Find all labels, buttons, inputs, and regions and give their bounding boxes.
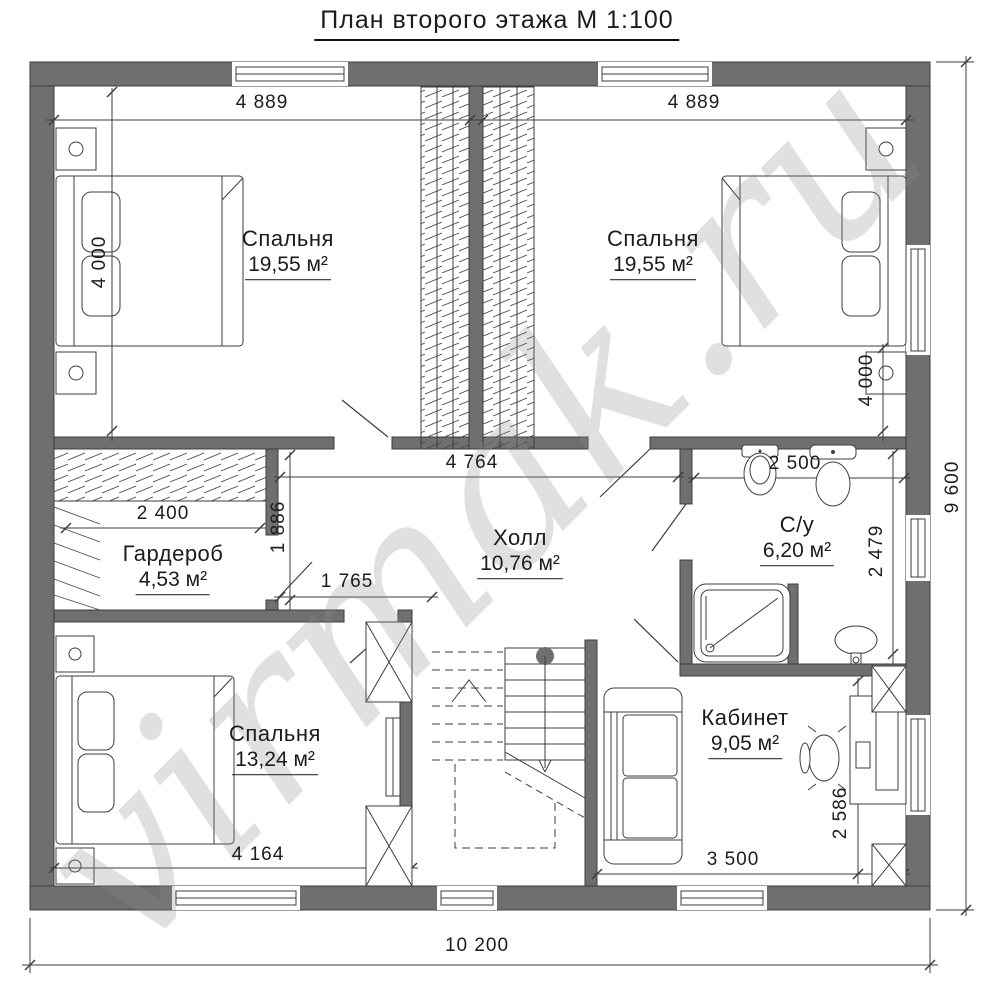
dim-label-wardrobe-depth: 1 886	[268, 501, 290, 554]
room-label-wardrobe: Гардероб 4,53 м²	[123, 541, 224, 595]
dim-label-total-width: 10 200	[445, 935, 509, 957]
dim-label-bedroom1-depth: 4 000	[89, 236, 111, 289]
staircase	[432, 647, 585, 848]
room-label-office: Кабинет 9,05 м²	[701, 705, 788, 759]
room-name: Холл	[477, 525, 563, 551]
office-chair	[800, 726, 846, 790]
dim-label-bedroom3-width: 4 164	[232, 844, 285, 866]
dim-label-office-width: 3 500	[707, 849, 760, 871]
dim-label-top-right-width: 4 889	[668, 92, 721, 114]
room-name: Спальня	[242, 226, 334, 252]
dim-label-wardrobe-width: 2 400	[137, 503, 190, 525]
room-label-hall: Холл 10,76 м²	[477, 525, 563, 579]
shower-tray	[694, 584, 790, 662]
room-label-bathroom: С/у 6,20 м²	[760, 512, 834, 566]
room-label-bedroom-2: Спальня 19,55 м²	[607, 226, 699, 280]
room-name: Спальня	[229, 721, 321, 747]
room-name: Спальня	[607, 226, 699, 252]
room-label-bedroom-3: Спальня 13,24 м²	[229, 721, 321, 775]
page-title: План второго этажа М 1:100	[314, 6, 679, 41]
bed-2	[722, 128, 906, 394]
sofa	[604, 688, 682, 864]
room-area: 19,55 м²	[610, 253, 696, 280]
dim-label-top-left-width: 4 889	[236, 92, 289, 114]
floor-plan-page: virmak.ru План второго этажа М 1:100 Спа…	[0, 0, 1000, 1003]
bed-1	[56, 128, 243, 394]
room-name: С/у	[760, 512, 834, 538]
room-name: Гардероб	[123, 541, 224, 567]
dim-label-total-depth: 9 600	[942, 461, 964, 514]
room-area: 9,05 м²	[708, 732, 782, 759]
dim-label-office-depth: 2 586	[830, 787, 852, 840]
dim-label-bedroom2-depth: 4 000	[856, 354, 878, 407]
bathroom-sink	[835, 626, 877, 664]
dim-label-bathroom-depth: 2 479	[866, 525, 888, 578]
floor-plan-drawing	[0, 0, 1000, 1003]
room-area: 13,24 м²	[232, 748, 318, 775]
room-area: 6,20 м²	[760, 539, 834, 566]
dresser	[386, 718, 400, 796]
dim-label-hall-width: 4 764	[446, 452, 499, 474]
room-label-bedroom-1: Спальня 19,55 м²	[242, 226, 334, 280]
room-area: 19,55 м²	[245, 253, 331, 280]
dim-label-hall-passage: 1 765	[321, 571, 374, 593]
bed-3	[56, 636, 234, 884]
dim-label-bathroom-width: 2 500	[769, 453, 822, 475]
room-area: 4,53 м²	[136, 568, 210, 595]
room-area: 10,76 м²	[477, 552, 563, 579]
room-name: Кабинет	[701, 705, 788, 731]
